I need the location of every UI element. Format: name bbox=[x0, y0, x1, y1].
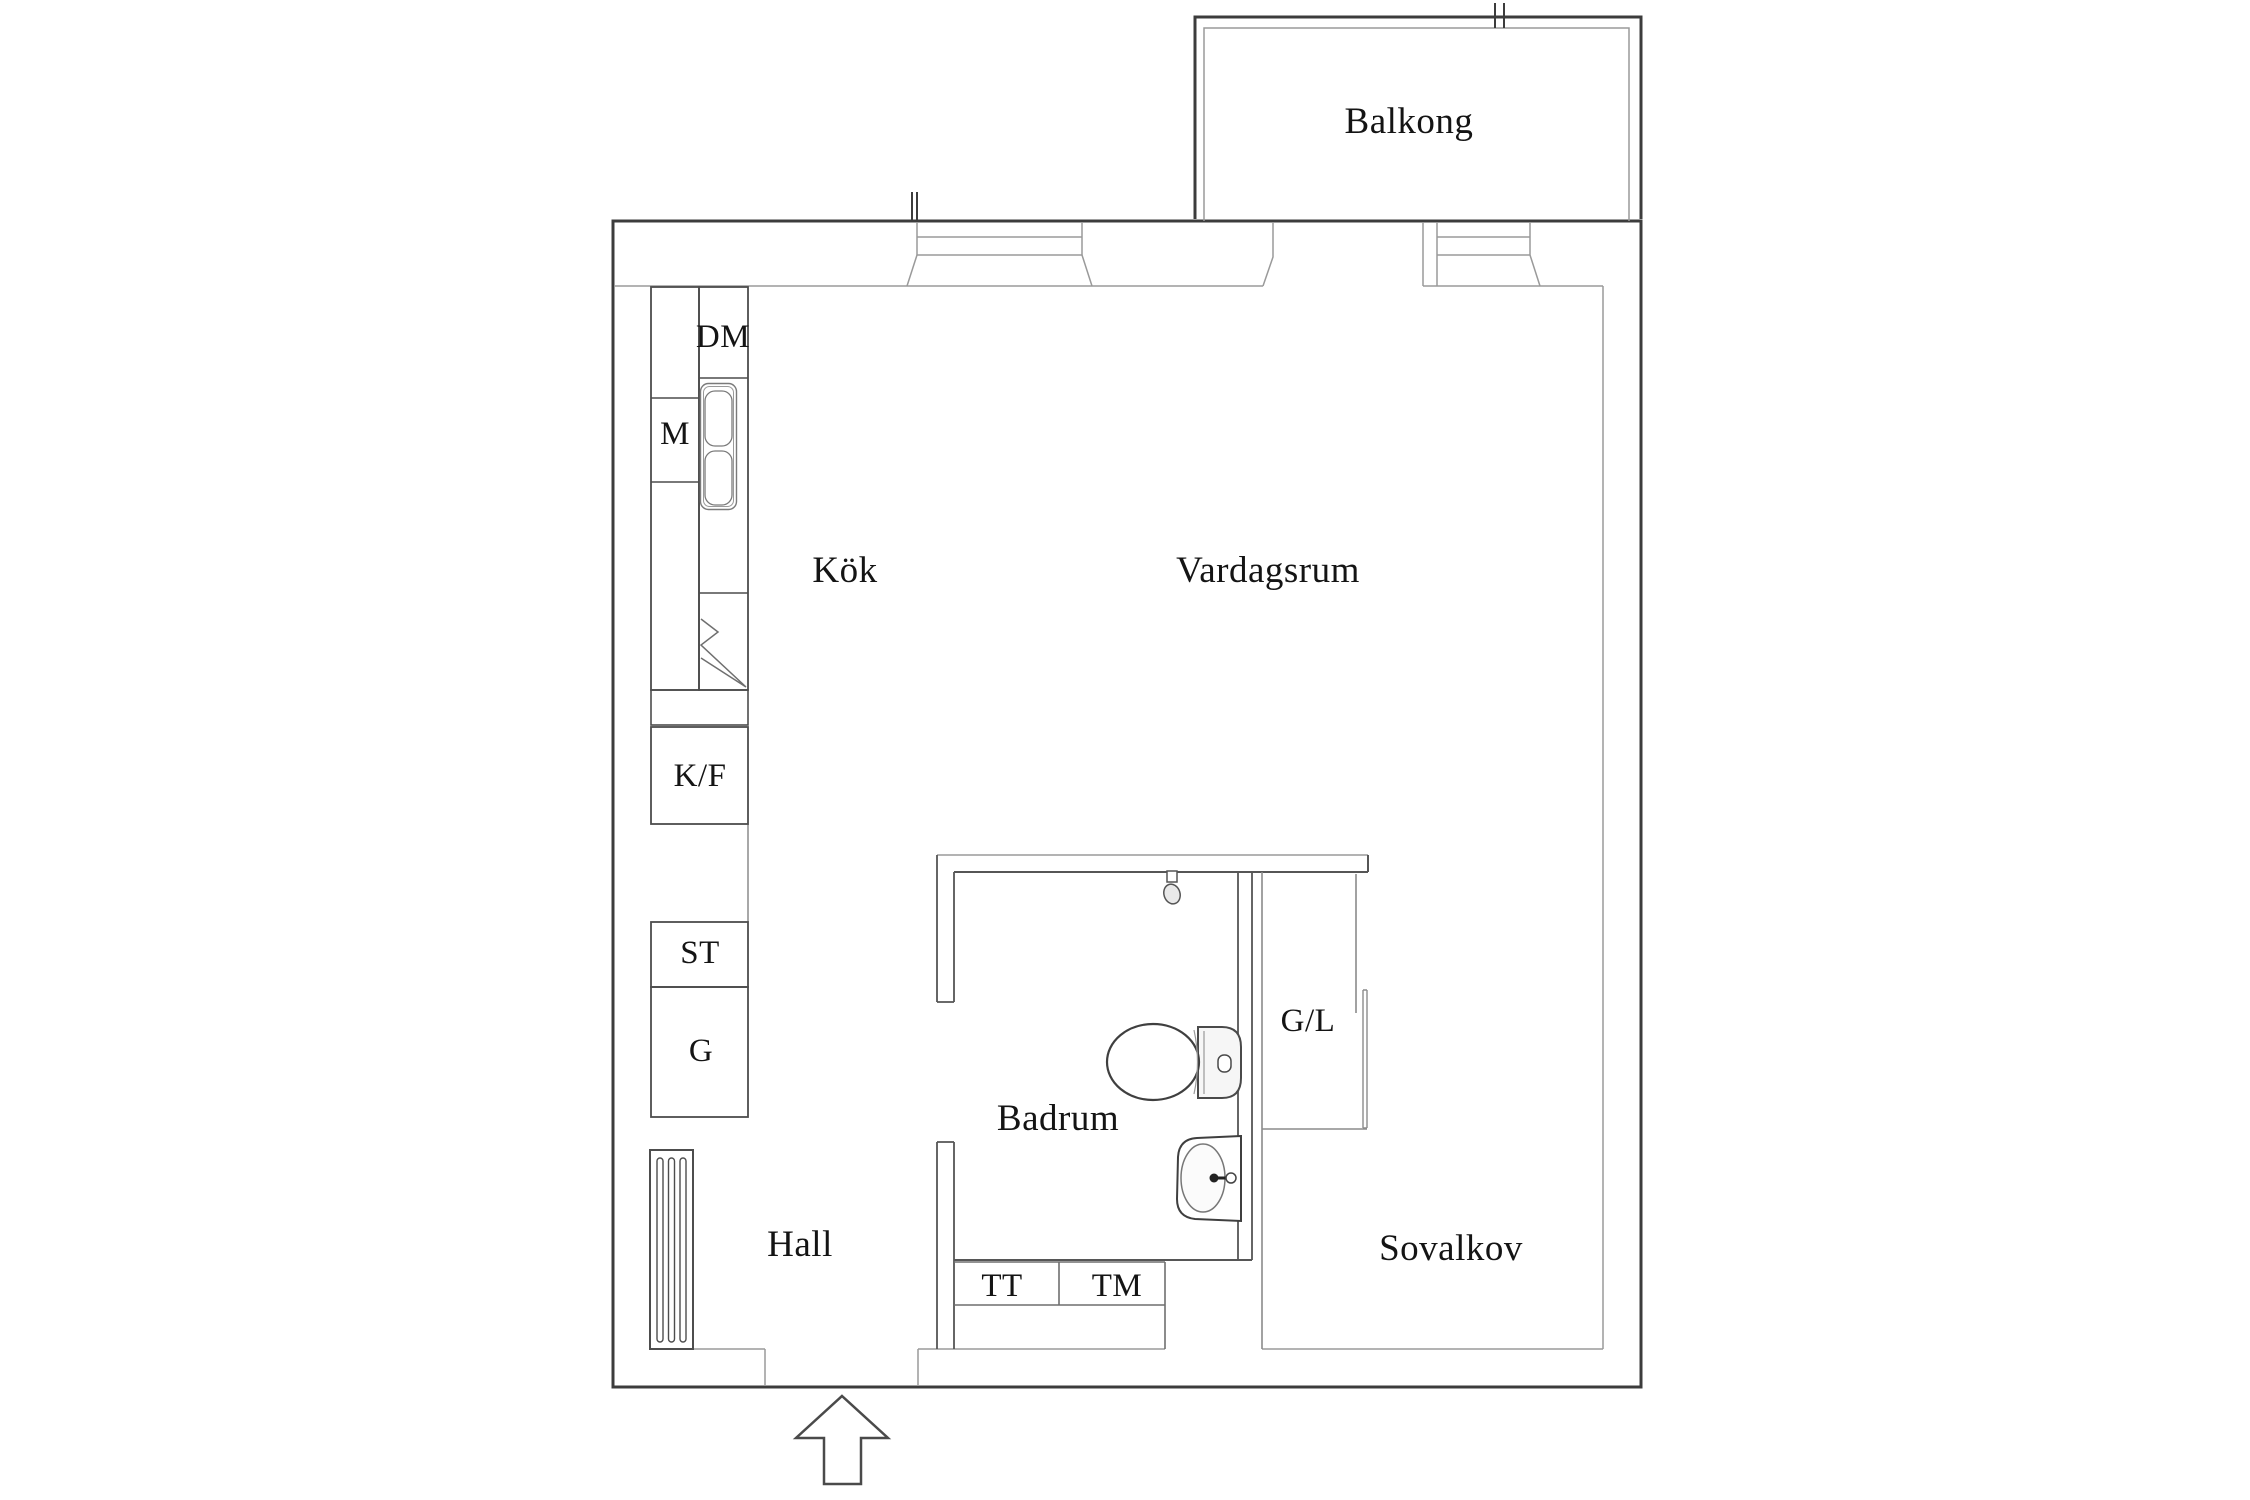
room-label-vardagsrum: Vardagsrum bbox=[1176, 550, 1360, 591]
sliding-door-panel-2 bbox=[1363, 990, 1367, 1128]
apartment-outline bbox=[613, 221, 1641, 1387]
balcony-window bbox=[1437, 222, 1540, 286]
entrance-arrow-icon bbox=[796, 1396, 888, 1484]
unit-label-m: M bbox=[660, 416, 690, 452]
toilet-flush-button bbox=[1218, 1055, 1231, 1072]
sink-faucet bbox=[1210, 1174, 1219, 1183]
unit-label-kf: K/F bbox=[674, 758, 727, 794]
unit-label-g: G bbox=[689, 1033, 713, 1069]
entry-door-jambs bbox=[765, 1349, 918, 1385]
sink-icon bbox=[1177, 1136, 1241, 1221]
labels: Balkong Kök Vardagsrum Badrum Hall Soval… bbox=[660, 101, 1523, 1304]
unit-label-dm: DM bbox=[696, 319, 750, 355]
balcony-door-and-window bbox=[1263, 222, 1540, 286]
bathroom-left-wall-lower bbox=[937, 1142, 954, 1349]
counter-end-box bbox=[651, 690, 748, 725]
window-outer-stub bbox=[912, 192, 917, 220]
bathroom-left-wall-upper bbox=[937, 855, 954, 1002]
floorplan-drawing: Balkong Kök Vardagsrum Badrum Hall Soval… bbox=[0, 0, 2250, 1500]
kitchen-sink-icon bbox=[701, 384, 737, 510]
room-label-badrum: Badrum bbox=[997, 1098, 1119, 1139]
door-window-mullion bbox=[1423, 222, 1437, 286]
stove-symbol-icon bbox=[701, 619, 746, 687]
unit-label-gl: G/L bbox=[1281, 1003, 1336, 1039]
window-kitchen bbox=[907, 192, 1092, 286]
room-label-hall: Hall bbox=[767, 1224, 833, 1265]
unit-label-tm: TM bbox=[1092, 1268, 1143, 1304]
room-label-balkong: Balkong bbox=[1345, 101, 1474, 142]
unit-label-st: ST bbox=[680, 935, 720, 971]
closet-gl bbox=[1262, 872, 1367, 1349]
toilet-icon bbox=[1107, 1024, 1241, 1100]
shower-icon bbox=[1161, 871, 1182, 906]
inner-wall-faces bbox=[614, 286, 1603, 1385]
room-label-kok: Kök bbox=[812, 550, 877, 591]
unit-label-tt: TT bbox=[981, 1268, 1022, 1304]
toilet-bowl bbox=[1107, 1024, 1199, 1100]
room-label-sovalkov: Sovalkov bbox=[1379, 1228, 1523, 1269]
floorplan-canvas: Balkong Kök Vardagsrum Badrum Hall Soval… bbox=[0, 0, 2250, 1500]
balcony-door-reveal bbox=[1263, 222, 1273, 286]
radiator-icon bbox=[650, 1150, 693, 1349]
